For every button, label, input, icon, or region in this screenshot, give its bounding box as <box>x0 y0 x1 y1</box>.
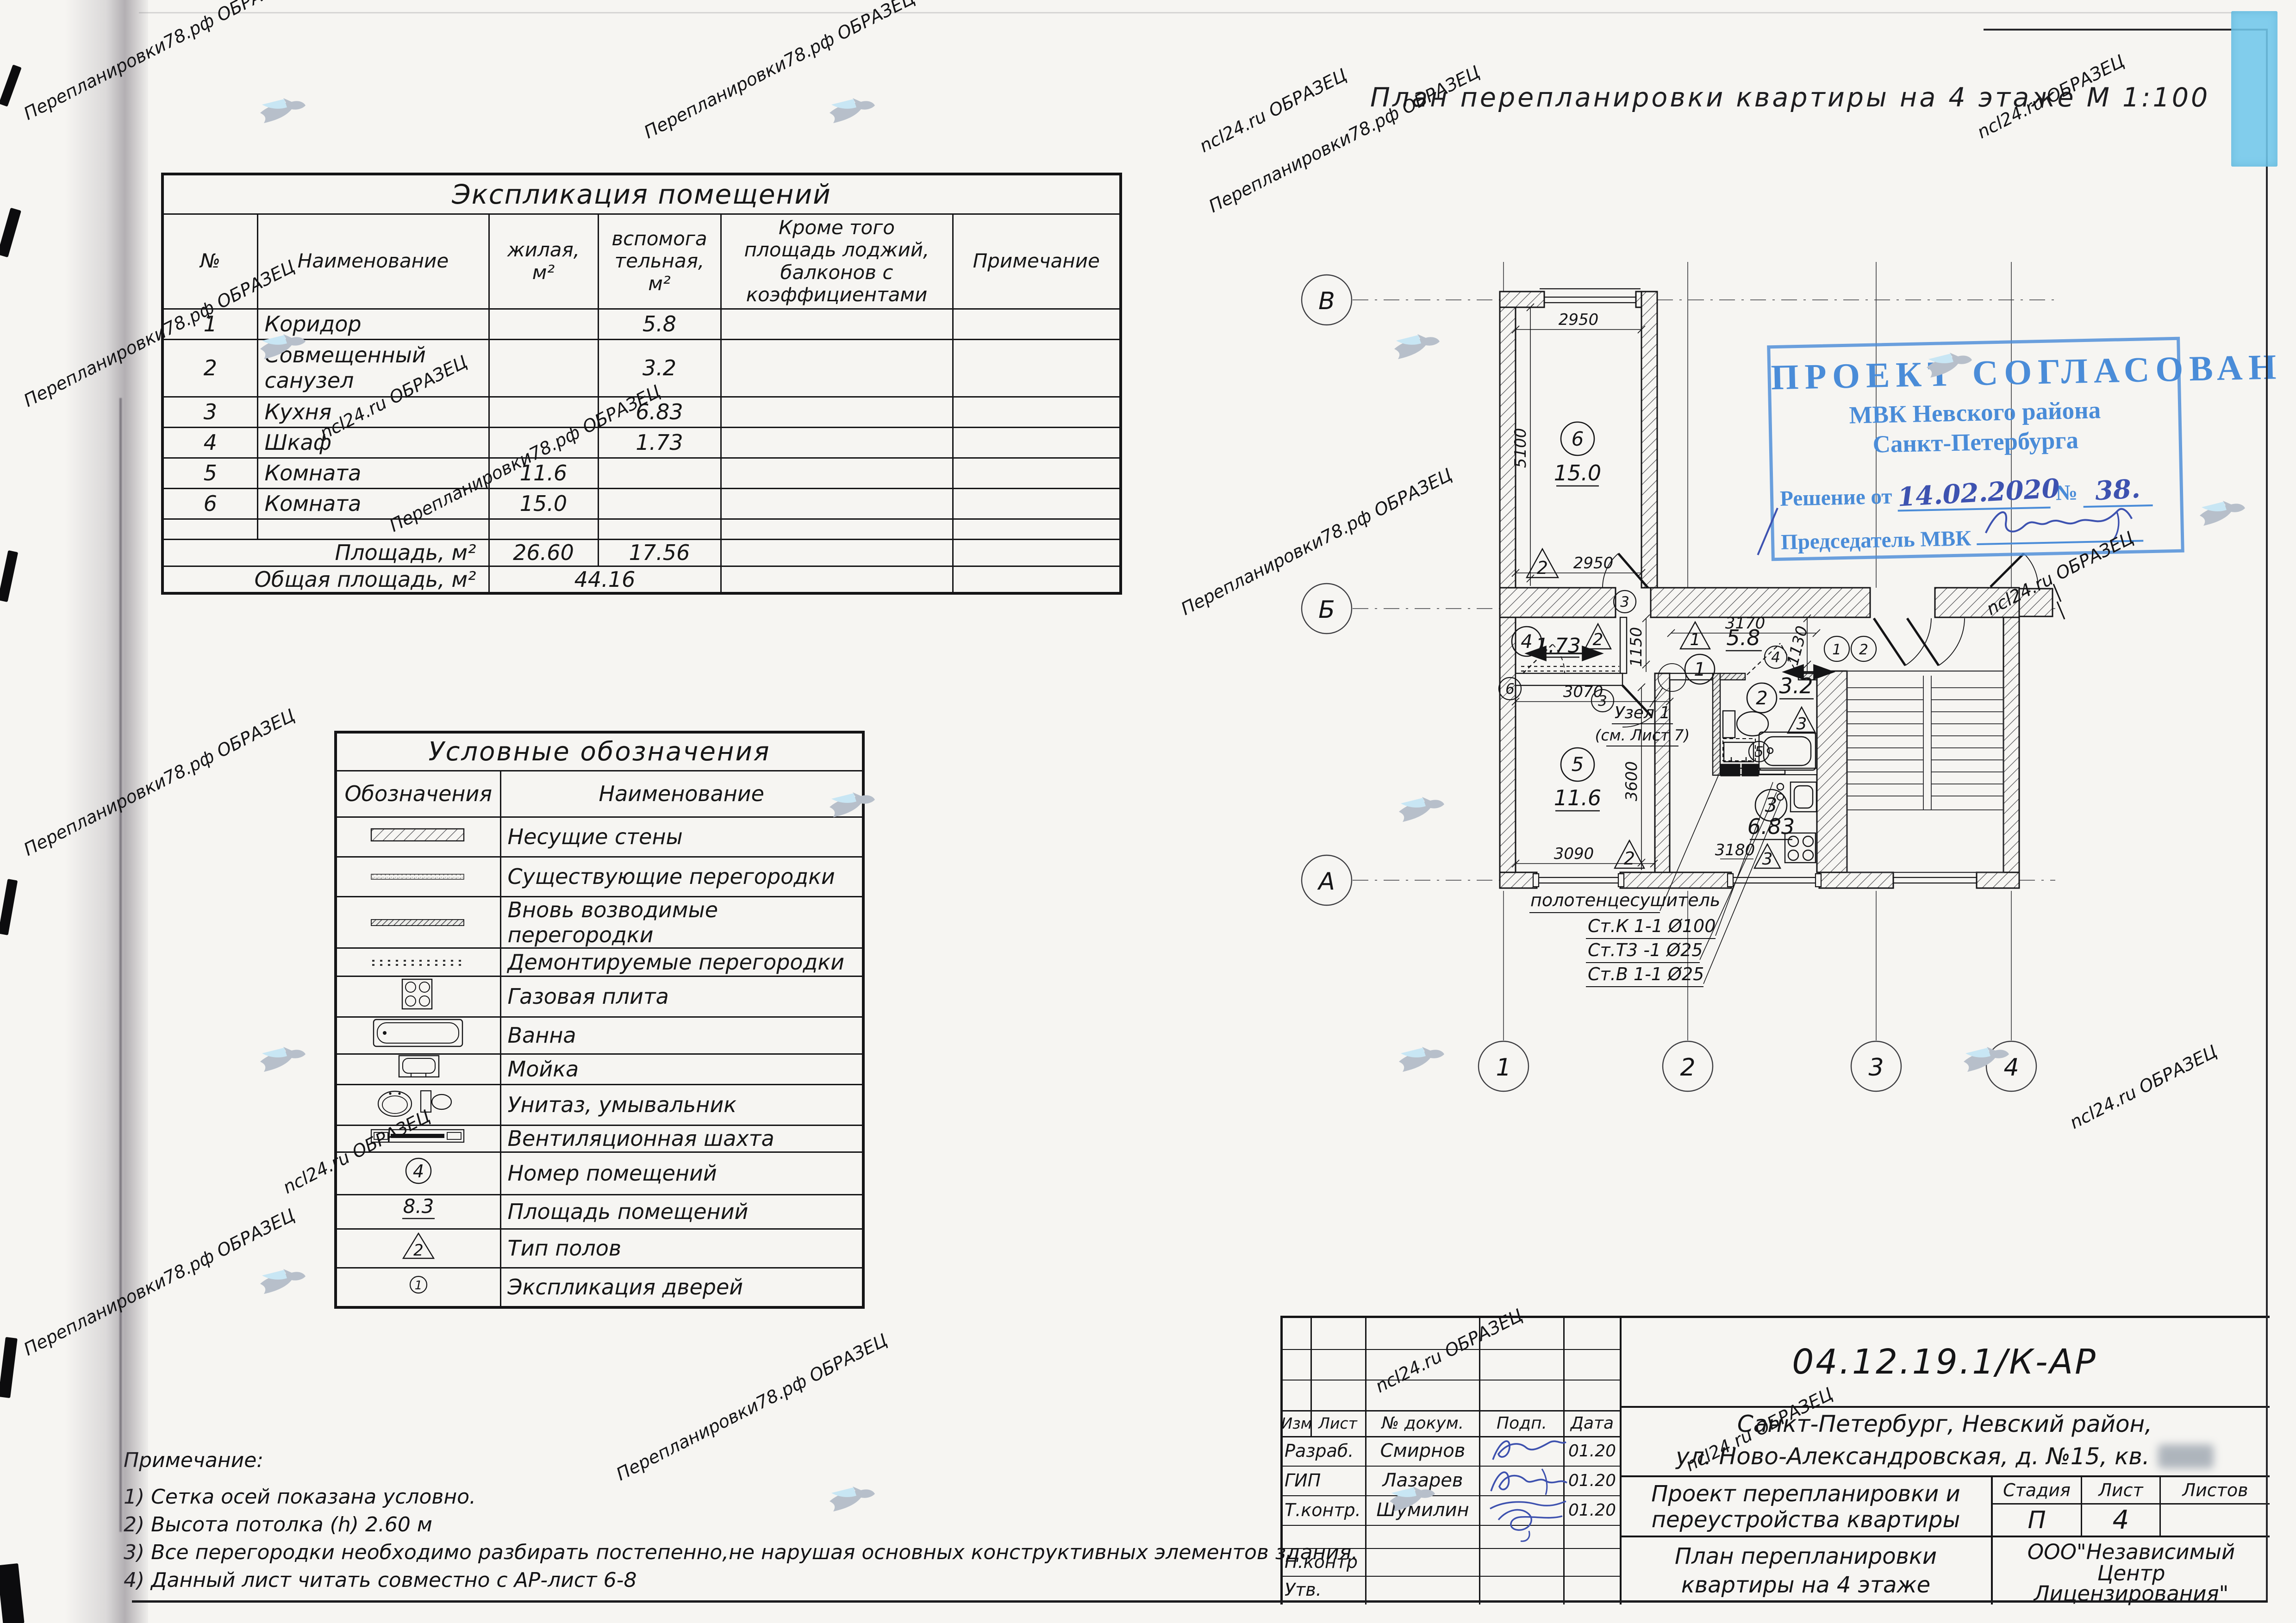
svg-text:Перепланировки78.рф ОБРАЗЕЦ: Перепланировки78.рф ОБРАЗЕЦ <box>20 705 298 860</box>
table-row: 2Совмещенный санузел 3.2 <box>162 339 1121 397</box>
page-fold-line <box>119 398 122 1532</box>
svg-text:3600: 3600 <box>1622 761 1641 802</box>
page-edge-mark <box>0 64 22 106</box>
svg-text:3180: 3180 <box>1715 841 1755 859</box>
legend-row: Вентиляционная шахта <box>336 1125 863 1152</box>
svg-text:1150: 1150 <box>1627 627 1646 667</box>
title-block: Изм Лист № докум. Подп. Дата Разраб. Сми… <box>1280 1316 2270 1604</box>
svg-text:Узел 1: Узел 1 <box>1615 703 1671 722</box>
svg-text:3.2: 3.2 <box>1779 673 1813 698</box>
svg-text:В: В <box>1318 287 1335 315</box>
note-line: 3) Все перегородки необходимо разбирать … <box>124 1541 1309 1564</box>
svg-text:Ст.В 1-1 Ø25: Ст.В 1-1 Ø25 <box>1588 964 1704 984</box>
stairs <box>1847 671 2003 872</box>
svg-text:(см. Лист 7): (см. Лист 7) <box>1595 726 1690 744</box>
svg-text:полотенцесушитель: полотенцесушитель <box>1530 890 1720 910</box>
note-line: 1) Сетка осей показана условно. <box>124 1485 1309 1509</box>
svg-text:1: 1 <box>414 1279 422 1293</box>
col-list: Лист <box>1310 1410 1365 1436</box>
col-num: № <box>162 214 257 309</box>
demolished-partition-icon <box>368 956 469 970</box>
page-edge-mark <box>0 1563 25 1623</box>
col-date: Дата <box>1565 1410 1620 1436</box>
table-row: 5Комната 11.6 <box>162 458 1121 488</box>
svg-text:Ст.Т3 -1 Ø25: Ст.Т3 -1 Ø25 <box>1588 940 1703 960</box>
legend-row: 4 Номер помещений <box>336 1152 863 1194</box>
riser-point <box>1777 784 1784 790</box>
svg-text:А: А <box>1317 868 1335 895</box>
svg-text:6.83: 6.83 <box>1747 814 1795 839</box>
legend-title: Условные обозначения <box>336 732 863 771</box>
svg-text:4: 4 <box>1771 649 1780 666</box>
svg-text:3070: 3070 <box>1563 683 1603 701</box>
legend-col-symbol: Обозначения <box>336 771 500 817</box>
page-edge-mark <box>0 208 21 258</box>
table-row: 1Коридор 5.8 <box>162 309 1121 339</box>
doc-code: 04.12.19.1/К-АР <box>1620 1318 2270 1406</box>
address-line1: Санкт-Петербург, Невский район, <box>1620 1409 2270 1439</box>
col-balcony: Кроме того площадь лоджий, балконов с ко… <box>721 214 953 309</box>
subtotal-row: Площадь, м² 26.60 17.56 <box>162 539 1121 566</box>
bearing-wall-icon <box>368 824 469 845</box>
col-living: жилая, м² <box>489 214 598 309</box>
kitchen-sink-icon <box>1791 782 1816 812</box>
org-name: ООО"Независимый <box>1993 1541 2270 1562</box>
legend-row: Мойка <box>336 1054 863 1084</box>
svg-text:1: 1 <box>1694 659 1705 680</box>
col-doc: № докум. <box>1366 1410 1479 1436</box>
col-name: Наименование <box>257 214 489 309</box>
svg-text:Перепланировки78.рф ОБРАЗЕЦ: Перепланировки78.рф ОБРАЗЕЦ <box>20 0 298 124</box>
bathtub-icon <box>1759 732 1816 770</box>
legend-row: Унитаз, умывальник <box>336 1084 863 1125</box>
blurred-flat-number <box>2158 1444 2214 1468</box>
existing-partition-icon <box>368 870 469 884</box>
signature <box>1486 1462 1570 1502</box>
svg-text:2950: 2950 <box>1573 554 1614 572</box>
notes: Примечание: 1) Сетка осей показана услов… <box>124 1449 1309 1596</box>
svg-text:4: 4 <box>2003 1054 2019 1082</box>
explication-title: Экспликация помещений <box>162 174 1121 214</box>
svg-text:11.6: 11.6 <box>1554 785 1601 810</box>
note-line: 2) Высота потолка (h) 2.60 м <box>124 1513 1309 1536</box>
page-edge-mark <box>0 550 18 602</box>
legend-col-name: Наименование <box>500 771 863 817</box>
toilet-washbasin-icon <box>374 1086 462 1119</box>
svg-text:2: 2 <box>1680 1054 1695 1082</box>
legend-row: Ванна <box>336 1017 863 1054</box>
svg-text:4: 4 <box>413 1161 424 1181</box>
svg-text:Б: Б <box>1318 596 1335 624</box>
svg-text:2: 2 <box>1756 688 1767 709</box>
sheet-number: 4 <box>2082 1505 2159 1536</box>
svg-text:1: 1 <box>1832 641 1841 658</box>
explication-table: Экспликация помещений № Наименование жил… <box>161 173 1122 595</box>
legend-row: 8.3 Площадь помещений <box>336 1194 863 1229</box>
signature <box>1485 1490 1572 1546</box>
svg-text:6: 6 <box>1505 681 1515 697</box>
room-area-icon: 8.3 <box>393 1195 444 1223</box>
svg-text:3: 3 <box>1797 715 1807 734</box>
total-row: Общая площадь, м² 44.16 <box>162 566 1121 593</box>
binding-shadow <box>65 0 148 1623</box>
svg-text:1: 1 <box>1496 1054 1511 1082</box>
legend-row: Существующие перегородки <box>336 857 863 896</box>
sink-icon <box>395 1055 442 1079</box>
svg-text:8.3: 8.3 <box>403 1195 434 1218</box>
svg-text:Ст.К 1-1 Ø100: Ст.К 1-1 Ø100 <box>1588 916 1716 936</box>
new-partition-icon <box>368 916 469 930</box>
sheets-label: Листов <box>2161 1477 2270 1503</box>
legend-row: Демонтируемые перегородки <box>336 948 863 976</box>
legend-row: 1 Экспликация дверей <box>336 1268 863 1307</box>
col-izm: Изм <box>1283 1410 1310 1436</box>
address-line2: ул. Ново-Александровская, д. №15, кв. <box>1620 1439 2270 1474</box>
svg-text:3090: 3090 <box>1554 845 1594 863</box>
svg-text:3: 3 <box>1762 850 1773 869</box>
svg-text:ncl24.ru ОБРАЗЕЦ: ncl24.ru ОБРАЗЕЦ <box>1196 65 1350 156</box>
svg-text:3: 3 <box>1868 1054 1884 1082</box>
svg-text:1.73: 1.73 <box>1535 634 1581 658</box>
svg-text:2: 2 <box>1859 641 1868 658</box>
svg-text:2: 2 <box>1624 848 1635 869</box>
approval-stamp: ПРОЕКТ СОГЛАСОВАН МВК Невского района Са… <box>1767 337 2184 561</box>
legend-row: 2 Тип полов <box>336 1229 863 1268</box>
floor-type-icon: 2 <box>398 1230 439 1262</box>
gas-stove-icon <box>398 977 439 1011</box>
svg-text:3: 3 <box>1620 594 1629 610</box>
legend-row: Вновь возводимые перегородки <box>336 896 863 948</box>
col-aux: вспомога тельная, м² <box>598 214 721 309</box>
col-sign: Подп. <box>1480 1410 1563 1436</box>
svg-text:5: 5 <box>1572 753 1584 776</box>
scanned-sheet: В Б А 1 2 3 4 <box>0 0 2296 1623</box>
page-edge-mark <box>0 1337 18 1398</box>
sheet-frame-top <box>1984 29 2268 31</box>
svg-text:2: 2 <box>1537 558 1548 578</box>
svg-text:4: 4 <box>1521 631 1532 653</box>
svg-text:3: 3 <box>1598 693 1607 709</box>
svg-text:2950: 2950 <box>1559 311 1599 329</box>
svg-text:Перепланировки78.рф ОБРАЗЕЦ: Перепланировки78.рф ОБРАЗЕЦ <box>20 1205 298 1360</box>
col-note: Примечание <box>953 214 1121 309</box>
stage-label: Стадия <box>1993 1477 2081 1503</box>
sheet-frame-bottom <box>132 1600 2268 1603</box>
svg-text:5: 5 <box>1754 744 1764 760</box>
svg-text:2: 2 <box>1593 630 1603 649</box>
legend-table: Условные обозначения Обозначения Наимено… <box>334 731 865 1309</box>
table-row: 6Комната 15.0 <box>162 488 1121 519</box>
note-line: 4) Данный лист читать совместно с АР-лис… <box>124 1568 1309 1592</box>
table-row: 3Кухня 6.83 <box>162 397 1121 427</box>
svg-text:5100: 5100 <box>1511 428 1530 468</box>
sheet-title: План перепланировки квартиры на 4 этаже … <box>1370 82 2185 113</box>
stamp-title: ПРОЕКТ СОГЛАСОВАН <box>1771 348 2178 398</box>
sheets-total <box>2161 1505 2270 1536</box>
blue-sticky-tab <box>2231 11 2277 167</box>
legend-row: Газовая плита <box>336 976 863 1017</box>
svg-text:1: 1 <box>1690 630 1701 649</box>
room-number-icon: 4 <box>400 1154 437 1188</box>
signature <box>1486 1433 1570 1470</box>
legend-row: Несущие стены <box>336 817 863 857</box>
table-row <box>162 519 1121 539</box>
page-top-edge <box>139 12 2250 13</box>
svg-text:6: 6 <box>1572 428 1584 450</box>
stage-value: П <box>1993 1505 2081 1536</box>
toilet-icon <box>1723 711 1768 738</box>
bathtub-icon <box>370 1018 467 1048</box>
svg-text:Перепланировки78.рф ОБРАЗЕЦ: Перепланировки78.рф ОБРАЗЕЦ <box>641 0 918 143</box>
vent-shaft-icon <box>368 1126 469 1146</box>
chairman-signature <box>1978 497 2137 547</box>
sheet-label: Лист <box>2082 1477 2159 1503</box>
svg-text:2: 2 <box>413 1241 424 1260</box>
sheet-frame-right <box>2266 29 2268 1602</box>
page-edge-mark <box>0 879 18 935</box>
notes-title: Примечание: <box>124 1449 1309 1472</box>
svg-text:5.8: 5.8 <box>1726 625 1760 650</box>
door-tag-icon: 1 <box>405 1272 432 1298</box>
svg-text:15.0: 15.0 <box>1554 460 1601 485</box>
table-row: 4Шкаф 1.73 <box>162 427 1121 458</box>
